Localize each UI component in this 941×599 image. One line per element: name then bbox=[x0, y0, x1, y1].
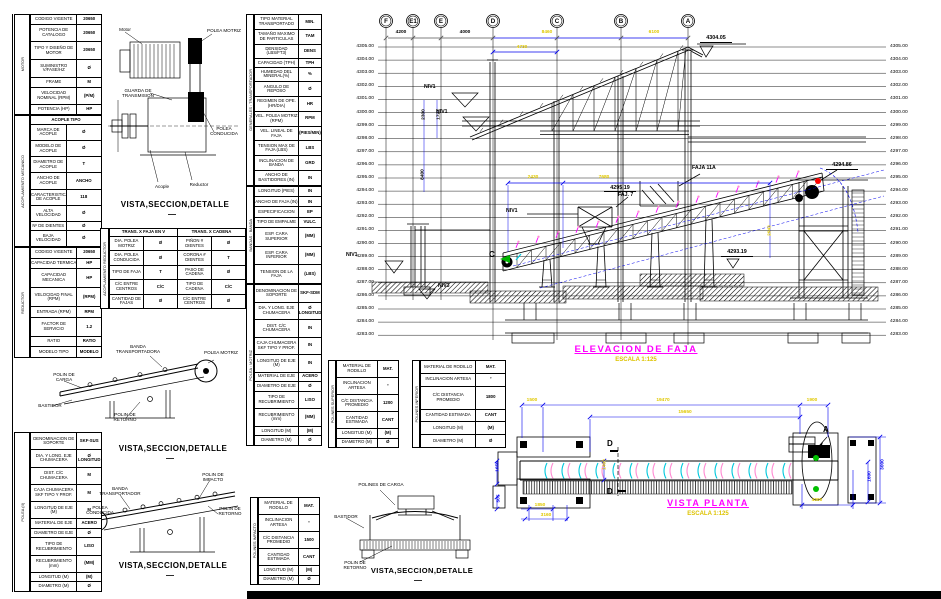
spec-value: Ø bbox=[299, 575, 320, 584]
grid-bubble-E1: E1 bbox=[405, 18, 421, 25]
detail-title-seccion: VISTA,SECCION,DETALLE bbox=[362, 566, 482, 575]
spec-row: MATERIAL DE RODILLOMAT. bbox=[337, 361, 399, 378]
spec-value: (M) bbox=[299, 566, 320, 575]
spec-row: DENSIDAD (LBS/FT3)DENS bbox=[255, 44, 322, 59]
spec-value: HP bbox=[77, 258, 102, 269]
spec-label: MODELO TIPO bbox=[31, 347, 77, 358]
spec-row: TIPO DE FAJATPASO DE CADENAØ bbox=[110, 265, 246, 279]
spec-row: TIPO MATERIAL TRANSPORTADOMIN. bbox=[255, 15, 322, 30]
spec-value: Ø bbox=[66, 141, 102, 157]
elevation-level-right: 4287.00 bbox=[890, 280, 930, 285]
detail-label: POLEA MOTRIZ bbox=[204, 350, 238, 355]
spec-row: INCLINACION ARTESA° bbox=[337, 378, 399, 395]
detail-label: Reductor bbox=[182, 182, 216, 187]
elevation-level-left: 4290.00 bbox=[336, 241, 374, 246]
spec-label: MATERIAL DE RODILLO bbox=[421, 361, 476, 374]
spec-label: TIPO DE RECUBRIMIENTO bbox=[31, 538, 77, 555]
elevation-level-right: 4291.00 bbox=[890, 227, 930, 232]
spec-row: CANTIDAD DE FAJASØC/C ENTRE CENTROSØ bbox=[110, 294, 246, 308]
elevation-note: NIV1 bbox=[436, 109, 448, 115]
spec-label: TENSION DE LA FAJA bbox=[255, 265, 299, 284]
plan-section-marker: D bbox=[607, 439, 619, 448]
spec-value: MODELO bbox=[77, 347, 102, 358]
spec-label: MARCA DE ACOPLE bbox=[31, 124, 67, 140]
elevation-dim: 2430 bbox=[520, 175, 546, 180]
spec-value: TPH bbox=[298, 59, 321, 67]
spec-row: CAJA CHUMACERA SKF TIPO Y PROF.IN bbox=[255, 337, 322, 355]
spec-label: DIST. C/C CHUMACERA bbox=[31, 467, 77, 484]
spec-label: DIA. POLEA CONDUCIDA bbox=[110, 251, 144, 265]
spec-row: RATIORATIO bbox=[31, 336, 102, 347]
spec-row: FRAMEM bbox=[31, 77, 102, 87]
acople-section-label: ACOPLAMIENTO MECANICO bbox=[20, 155, 25, 208]
spec-row: CANTIDAD ESTIMADACANT bbox=[421, 409, 506, 422]
spec-row: VEL. POLEA MOTRIZ (RPM)RPM bbox=[255, 111, 322, 126]
spec-value: Ø bbox=[476, 435, 506, 448]
spec-row: DIA. POLEA MOTRIZØPIÑON # DIENTESØ bbox=[110, 236, 246, 250]
elevation-dim: 4730 bbox=[509, 45, 535, 50]
spec-label: CAJA CHUMACERA SKF TIPO Y PROF. bbox=[255, 337, 299, 355]
spec-label: DENSIDAD (LBS/FT3) bbox=[255, 44, 299, 59]
spec-label: DIA. POLEA MOTRIZ bbox=[110, 236, 144, 250]
spec-label: TENSION MAX DE FAJA (LBS) bbox=[255, 141, 299, 156]
motor-table: CODIGO VIGENTE20650POTENCIA DE CATALOGO2… bbox=[30, 14, 102, 115]
elevation-note: NIV1 bbox=[506, 208, 518, 214]
elevation-level-right: 4295.00 bbox=[890, 175, 930, 180]
grid-bubble-F: F bbox=[378, 18, 394, 25]
spec-row: REGIMEN DE OPE. (HR/DIA)HR bbox=[255, 97, 322, 112]
spec-row: MATERIAL DE RODILLOMAT. bbox=[421, 361, 506, 374]
spec-row: CAPACIDAD TERMICAHP bbox=[31, 258, 102, 269]
spec-label: DIA. Y LONG. EJE CHUMACERA bbox=[255, 302, 299, 320]
spec-value: ° bbox=[299, 515, 320, 532]
elevation-level-right: 4305.00 bbox=[890, 44, 930, 49]
spec-label: FRAME bbox=[31, 77, 77, 87]
spec-row: DIA. Y LONG. EJE CHUMACERAØ LONGITUD bbox=[255, 302, 322, 320]
spec-label: CAPACIDAD (TPH) bbox=[255, 59, 299, 67]
elevation-level-right: 4296.00 bbox=[890, 162, 930, 167]
elevation-level-right: 4299.00 bbox=[890, 123, 930, 128]
spec-label: CAPACIDAD TERMICA bbox=[31, 258, 77, 269]
elevation-level-right: 4304.00 bbox=[890, 57, 930, 62]
spec-row: DIAMETRO (M)Ø bbox=[31, 582, 102, 592]
spec-label: CAPACIDAD MECANICA bbox=[31, 269, 77, 288]
spec-value: Ø LONGITUD bbox=[77, 450, 102, 467]
elevation-level-right: 4300.00 bbox=[890, 110, 930, 115]
spec-label: VELOCIDAD NOMINAL (RPM) bbox=[31, 87, 77, 105]
spec-label: VEL. LINEAL DE FAJA bbox=[255, 126, 299, 141]
banda-table: LONGITUD (PIES)INANCHO DE FAJA (IN)INESP… bbox=[254, 186, 322, 284]
spec-row: TIPO DE RECUBRIMIENTOLISO bbox=[255, 391, 322, 409]
spec-value: TAM bbox=[298, 29, 321, 44]
plan-dim: 1900 bbox=[799, 398, 825, 403]
elevation-level-right: 4290.00 bbox=[890, 241, 930, 246]
spec-value: T bbox=[212, 251, 246, 265]
elevation-level-left: 4293.00 bbox=[336, 201, 374, 206]
elevation-level-left: 4300.00 bbox=[336, 110, 374, 115]
spec-row: C/C DISTANCIA PROMEDIO1200 bbox=[337, 395, 399, 412]
elevation-level-left: 4286.00 bbox=[336, 293, 374, 298]
plan-scale: ESCALA 1:125 bbox=[660, 511, 756, 517]
detail-label: Acople bbox=[148, 184, 176, 189]
spec-label: INCLINACION ARTESA bbox=[259, 515, 299, 532]
elevation-note: NIV1 bbox=[424, 84, 436, 90]
spec-row: DIAMETRO DE ACOPLET bbox=[31, 157, 102, 173]
spec-value: M bbox=[77, 77, 102, 87]
spec-value: (M) bbox=[377, 429, 398, 438]
spec-label: C/C DISTANCIA PROMEDIO bbox=[337, 395, 378, 412]
spec-label: MATERIAL DE EJE bbox=[31, 519, 77, 528]
spec-label: C/C DISTANCIA PROMEDIO bbox=[421, 386, 476, 409]
spec-label: TIPO Y DISEÑO DE MOTOR bbox=[31, 42, 77, 60]
spec-value: (M) bbox=[77, 572, 102, 581]
elevation-level-right: 4298.00 bbox=[890, 136, 930, 141]
plan-dim: 505 bbox=[497, 486, 502, 512]
polea-conducida-section-strip: POLEA (II) bbox=[14, 432, 30, 592]
spec-value: VULC. bbox=[298, 217, 321, 227]
polines-impacto-table: MATERIAL DE RODILLOMAT.INCLINACION ARTES… bbox=[258, 497, 320, 585]
spec-label: LONGITUD (M) bbox=[259, 566, 299, 575]
elevation-level-left: 4284.00 bbox=[336, 319, 374, 324]
spec-value: Ø bbox=[212, 294, 246, 308]
detail-label: POLIN DE RETORNO bbox=[334, 560, 376, 570]
elevation-level-right: 4302.00 bbox=[890, 83, 930, 88]
spec-row: DIA. POLEA CONDUCIDAØCORONA # DIENTEST bbox=[110, 251, 246, 265]
table-header: TRANS. X CADENA bbox=[178, 229, 246, 237]
spec-label: DIST. C/C CHUMACERA bbox=[255, 320, 299, 338]
table-header: ACOPLE TIPO bbox=[31, 116, 102, 125]
spec-value: 20650 bbox=[77, 15, 102, 25]
spec-row: CANTIDAD ESTIMADACANT bbox=[337, 412, 399, 429]
polines-inferior-label: POLINES INFERIOR bbox=[414, 386, 419, 423]
spec-value: Ø LONGITUD bbox=[298, 302, 321, 320]
spec-label: MATERIAL DE EJE bbox=[255, 372, 299, 382]
spec-label: CAJA CHUMACERA SKF TIPO Y PROF. bbox=[31, 484, 77, 501]
generales-section-label: GENERALES : TRANSPORTADOR bbox=[248, 69, 253, 131]
spec-row: FACTOR DE SERVICIO1.2 bbox=[31, 317, 102, 336]
plan-section-marker: A bbox=[823, 425, 835, 434]
spec-value: (M) bbox=[476, 422, 506, 435]
spec-row: TIPO DE RECUBRIMIENTOLISO bbox=[31, 538, 102, 555]
grid-bubble-B: B bbox=[613, 18, 629, 25]
spec-value: CANT bbox=[299, 549, 320, 566]
elevation-level-right: 4294.00 bbox=[890, 188, 930, 193]
spec-label: C/C ENTRE CENTROS bbox=[178, 294, 212, 308]
spec-value: Ø bbox=[77, 60, 102, 78]
spec-row: CANTIDAD ESTIMADACANT bbox=[259, 549, 320, 566]
spec-row: CODIGO VIGENTE20650 bbox=[31, 248, 102, 259]
detail-dash-motor: — bbox=[168, 210, 176, 219]
detail-label: BANDA TRANSPORTADOR bbox=[96, 486, 144, 496]
polea-motriz-table: DENOMINACION DE SOPORTESKF-SDMDIA. Y LON… bbox=[254, 284, 322, 446]
spec-label: RECUBRIMIENTO (mm) bbox=[31, 555, 77, 572]
spec-row: ESP. CARA SUPERIOR(MM) bbox=[255, 227, 322, 246]
spec-row: TIPO DE EMPALMEVULC. bbox=[255, 217, 322, 227]
cad-drawing-page: MOTOR CODIGO VIGENTE20650POTENCIA DE CAT… bbox=[0, 0, 941, 599]
elevation-mark: 4295.19 bbox=[604, 185, 636, 193]
polines-impacto-label: POLINES IMPACTO bbox=[252, 523, 257, 558]
detail-label: POLIN DE CARGA bbox=[46, 372, 82, 382]
spec-value: (MM) bbox=[298, 409, 321, 427]
spec-row: MODELO DE ACOPLEØ bbox=[31, 141, 102, 157]
elevation-level-left: 4285.00 bbox=[336, 306, 374, 311]
motor-section-label: MOTOR bbox=[20, 57, 25, 71]
spec-value: Ø bbox=[144, 236, 178, 250]
plan-title: VISTA PLANTA bbox=[662, 498, 754, 508]
spec-value: HP bbox=[77, 105, 102, 115]
generales-table: TIPO MATERIAL TRANSPORTADOMIN.TAMAÑO MAX… bbox=[254, 14, 322, 186]
spec-label: POTENCIA DE CATALOGO bbox=[31, 24, 77, 42]
spec-value: 1200 bbox=[377, 395, 398, 412]
spec-value: LISO bbox=[298, 391, 321, 409]
elevation-level-right: 4286.00 bbox=[890, 293, 930, 298]
spec-label: RATIO bbox=[31, 336, 77, 347]
spec-value: RATIO bbox=[77, 336, 102, 347]
polines-superior-label: POLINES SUPERIOR bbox=[330, 385, 335, 423]
motor-section-strip: MOTOR bbox=[14, 14, 30, 115]
spec-row: CARACTERISTICA DE ACOPLE118 bbox=[31, 189, 102, 205]
elevation-level-right: 4293.00 bbox=[890, 201, 930, 206]
detail-label: POLEA MOTRIZ bbox=[206, 28, 242, 33]
spec-label: DIA. Y LONG. EJE CHUMACERA bbox=[31, 450, 77, 467]
spec-row: ANCHO DE FAJA (IN)IN bbox=[255, 197, 322, 207]
spec-row: POTENCIA (HP)HP bbox=[31, 105, 102, 115]
spec-label: PASO DE CADENA bbox=[178, 265, 212, 279]
spec-value: IN bbox=[298, 337, 321, 355]
spec-value: RPM bbox=[298, 111, 321, 126]
spec-label: DIAMETRO DE ACOPLE bbox=[31, 157, 67, 173]
detail-label: POLIN DE RETORNO bbox=[210, 506, 250, 516]
spec-row: MATERIAL DE EJEACERO bbox=[255, 372, 322, 382]
grid-bubble-C: C bbox=[549, 18, 565, 25]
spec-label: DIAMETRO (M) bbox=[31, 582, 77, 592]
elevation-level-left: 4294.00 bbox=[336, 188, 374, 193]
spec-row: ALTA VELOCIDADØ bbox=[31, 205, 102, 221]
polea-motriz-section-strip: POLEA : MOTRIZ bbox=[246, 284, 254, 446]
spec-value: RPM bbox=[77, 307, 102, 318]
spec-value: T bbox=[66, 157, 102, 173]
polines-inferior-table: MATERIAL DE RODILLOMAT.INCLINACION ARTES… bbox=[420, 360, 506, 448]
elevation-mark: 4304.05 bbox=[700, 35, 732, 43]
spec-row: INCLINACION ARTESA° bbox=[259, 515, 320, 532]
elevation-level-left: 4301.00 bbox=[336, 96, 374, 101]
spec-value: Ø bbox=[298, 82, 321, 97]
spec-value: 118 bbox=[66, 189, 102, 205]
plan-dim: 1500 bbox=[519, 398, 545, 403]
detail-label: Motor bbox=[112, 27, 138, 32]
elevation-dim: 2943 bbox=[768, 218, 773, 244]
spec-row: C/C DISTANCIA PROMEDIO1500 bbox=[259, 532, 320, 549]
spec-value: MIN. bbox=[298, 15, 321, 30]
elevation-dim: 7680 bbox=[591, 175, 617, 180]
elevation-level-right: 4301.00 bbox=[890, 96, 930, 101]
spec-value: SKF-SUS bbox=[77, 433, 102, 450]
spec-row: DENOMINACION DE SOPORTESKF-SUS bbox=[31, 433, 102, 450]
spec-label: SUMINISTRO V/FASE/HZ bbox=[31, 60, 77, 78]
spec-label: LONGITUD (M) bbox=[337, 429, 378, 438]
spec-label: ESPECIFICACION bbox=[255, 207, 299, 217]
detail-label: POLIN DE IMPACTO bbox=[192, 472, 234, 482]
spec-row: DIST. C/C CHUMACERAM bbox=[31, 467, 102, 484]
spec-value: IN bbox=[298, 197, 321, 207]
plan-dim: 1400 bbox=[603, 452, 608, 478]
elevation-level-left: 4287.00 bbox=[336, 280, 374, 285]
spec-label: INCLINACION DE BANDA bbox=[255, 156, 299, 171]
elevation-dim: 2300 bbox=[422, 102, 427, 128]
spec-value: IN bbox=[298, 171, 321, 186]
spec-label: LONGITUD (PIES) bbox=[255, 187, 299, 197]
elevation-note: NIV3 bbox=[438, 283, 450, 289]
spec-row: RECUBRIMIENTO (mm)(MM) bbox=[255, 409, 322, 427]
spec-value: Ø bbox=[298, 382, 321, 392]
spec-value: 1800 bbox=[476, 386, 506, 409]
spec-label: DIAMETRO (M) bbox=[421, 435, 476, 448]
spec-label: DIAMETRO (M) bbox=[255, 436, 299, 446]
spec-label: CANTIDAD ESTIMADA bbox=[259, 549, 299, 566]
elevation-dim: 4000 bbox=[452, 30, 478, 35]
spec-row: INCLINACION ARTESA° bbox=[421, 373, 506, 386]
elevation-level-left: 4297.00 bbox=[336, 149, 374, 154]
grid-bubble-E: E bbox=[433, 18, 449, 25]
spec-value: EP bbox=[298, 207, 321, 217]
elevation-dim: 8460 bbox=[534, 30, 560, 35]
spec-row: ANCHO DE ACOPLEANCHO bbox=[31, 173, 102, 189]
spec-value: ACERO bbox=[77, 519, 102, 528]
spec-value: CANT bbox=[476, 409, 506, 422]
spec-value: LBS bbox=[298, 141, 321, 156]
plan-dim: 15650 bbox=[672, 410, 698, 415]
spec-value: Ø bbox=[298, 436, 321, 446]
banda-section-strip: BANDAS : BANDA bbox=[246, 186, 254, 284]
spec-label: VEL. POLEA MOTRIZ (RPM) bbox=[255, 111, 299, 126]
spec-label: BAJA VELOCIDAD bbox=[31, 230, 67, 246]
spec-row: LONGITUD (PIES)IN bbox=[255, 187, 322, 197]
spec-label: DENOMINACION DE SOPORTE bbox=[255, 285, 299, 303]
spec-label: REGIMEN DE OPE. (HR/DIA) bbox=[255, 97, 299, 112]
spec-label: LONGITUD DE EJE (M) bbox=[31, 502, 77, 519]
spec-row: CODIGO VIGENTE20650 bbox=[31, 15, 102, 25]
detail-title-motor: VISTA,SECCION,DETALLE bbox=[108, 200, 242, 209]
acoplamiento-reductor-strip: ACOPLAMIENTO REDUCTOR bbox=[100, 228, 109, 309]
spec-label: LONGITUD (M) bbox=[31, 572, 77, 581]
spec-row: TENSION DE LA FAJA(LBS) bbox=[255, 265, 322, 284]
acoplamiento-reductor-table: TRANS. X FAJA EN VTRANS. X CADENADIA. PO… bbox=[109, 228, 246, 309]
spec-label: LONGITUD (M) bbox=[255, 426, 299, 436]
spec-value: (PIES/MIN) bbox=[298, 126, 321, 141]
spec-row: LONGITUD (M)(M) bbox=[337, 429, 399, 438]
detail-label: POLEA CONDUCIDA bbox=[204, 126, 244, 136]
detail-label: BASTIDOR bbox=[326, 514, 366, 519]
spec-row: TIPO Y DISEÑO DE MOTOR20650 bbox=[31, 42, 102, 60]
spec-row: ENTRADA (RPM)RPM bbox=[31, 307, 102, 318]
spec-row: SUMINISTRO V/FASE/HZØ bbox=[31, 60, 102, 78]
elevation-dim: 4200 bbox=[388, 30, 414, 35]
polea-conducida-section-label: POLEA (II) bbox=[20, 503, 25, 522]
spec-label: VELOCIDAD FINAL (RPM) bbox=[31, 288, 77, 307]
spec-value: Ø bbox=[212, 236, 246, 250]
elevation-note: FAJ. 7 bbox=[618, 192, 633, 198]
spec-label: MATERIAL DE RODILLO bbox=[337, 361, 378, 378]
elevation-note: C bbox=[489, 250, 495, 259]
spec-label: PIÑON # DIENTES bbox=[178, 236, 212, 250]
spec-label: TAMAÑO MAXIMO DE PARTICULAS bbox=[255, 29, 299, 44]
elevation-mark: 4294.86 bbox=[826, 162, 858, 170]
spec-row: DIAMETRO (M)Ø bbox=[421, 435, 506, 448]
reductor-section-strip: REDUCTOR bbox=[14, 247, 30, 358]
spec-row: DIAMETRO (M)Ø bbox=[259, 575, 320, 584]
plan-dim: 1850 bbox=[527, 503, 553, 508]
spec-row: DIAMETRO (M)Ø bbox=[255, 436, 322, 446]
spec-row: MATERIAL DE RODILLOMAT. bbox=[259, 498, 320, 515]
detail-dash-cola: — bbox=[166, 571, 174, 580]
spec-value: DENS bbox=[298, 44, 321, 59]
spec-label: DIAMETRO (M) bbox=[259, 575, 299, 584]
spec-label: CODIGO VIGENTE bbox=[31, 248, 77, 259]
spec-row: VELOCIDAD NOMINAL (RPM)(P/M) bbox=[31, 87, 102, 105]
spec-row: ANCHO DE BASTIDORES (IN)IN bbox=[255, 171, 322, 186]
spec-value: (MM) bbox=[77, 555, 102, 572]
spec-row: VELOCIDAD FINAL (RPM)(RPM) bbox=[31, 288, 102, 307]
spec-value: ° bbox=[377, 378, 398, 395]
spec-label: ESP. CARA INFERIOR bbox=[255, 246, 299, 265]
elevation-level-right: 4297.00 bbox=[890, 149, 930, 154]
spec-row: DIAMETRO (M)Ø bbox=[337, 438, 399, 447]
acoplamiento-reductor-label: ACOPLAMIENTO REDUCTOR bbox=[102, 242, 107, 296]
plan-dim: 1650 bbox=[496, 454, 501, 480]
spec-label: MATERIAL DE RODILLO bbox=[259, 498, 299, 515]
spec-label: FACTOR DE SERVICIO bbox=[31, 317, 77, 336]
spec-row: RECUBRIMIENTO (mm)(MM) bbox=[31, 555, 102, 572]
elevation-level-right: 4284.00 bbox=[890, 319, 930, 324]
detail-dash-seccion: — bbox=[414, 576, 422, 585]
spec-value: IN bbox=[298, 355, 321, 373]
spec-label: TIPO DE CADENA bbox=[178, 280, 212, 294]
spec-label: CODIGO VIGENTE bbox=[31, 15, 77, 25]
elevation-level-left: 4288.00 bbox=[336, 267, 374, 272]
spec-value: % bbox=[298, 67, 321, 82]
spec-value: (RPM) bbox=[77, 288, 102, 307]
elevation-level-left: 4299.00 bbox=[336, 123, 374, 128]
spec-value: Ø bbox=[77, 582, 102, 592]
spec-value: MAT. bbox=[299, 498, 320, 515]
elevation-level-left: 4305.00 bbox=[336, 44, 374, 49]
spec-label: TIPO MATERIAL TRANSPORTADO bbox=[255, 15, 299, 30]
detail-title-cola: VISTA,SECCION,DETALLE bbox=[106, 561, 240, 570]
spec-value: HP bbox=[77, 269, 102, 288]
spec-value: M bbox=[77, 467, 102, 484]
spec-label: ANCHO DE FAJA (IN) bbox=[255, 197, 299, 207]
spec-row: ESPECIFICACIONEP bbox=[255, 207, 322, 217]
spec-label: TIPO DE FAJA bbox=[110, 265, 144, 279]
plan-section-marker: D bbox=[607, 487, 619, 496]
spec-value: Ø bbox=[212, 265, 246, 279]
spec-value: C/C bbox=[212, 280, 246, 294]
elevation-level-right: 4288.00 bbox=[890, 267, 930, 272]
reductor-section-label: REDUCTOR bbox=[20, 292, 25, 314]
elevation-level-left: 4291.00 bbox=[336, 227, 374, 232]
spec-value: SKF-SDM bbox=[298, 285, 321, 303]
generales-section-strip: GENERALES : TRANSPORTADOR bbox=[246, 14, 254, 186]
spec-row: CAPACIDAD (TPH)TPH bbox=[255, 59, 322, 67]
grid-bubble-D: D bbox=[485, 18, 501, 25]
spec-value: Ø bbox=[66, 124, 102, 140]
spec-row: DIAMETRO DE EJEØ bbox=[255, 382, 322, 392]
elevation-level-right: 4289.00 bbox=[890, 254, 930, 259]
spec-row: LONGITUD DE EJE (M)IN bbox=[255, 355, 322, 373]
spec-value: (M) bbox=[298, 426, 321, 436]
spec-row: ESP. CARA INFERIOR(MM) bbox=[255, 246, 322, 265]
spec-value: 1.2 bbox=[77, 317, 102, 336]
